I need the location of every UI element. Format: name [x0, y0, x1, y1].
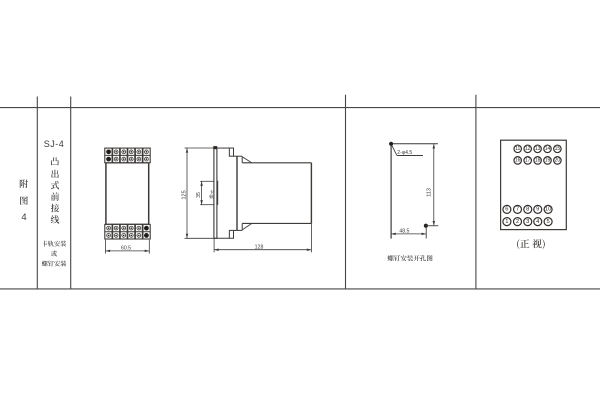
svg-text:113: 113: [426, 188, 432, 197]
svg-text:20: 20: [555, 158, 561, 164]
svg-text:12: 12: [525, 146, 531, 152]
svg-text:10: 10: [545, 207, 551, 213]
svg-text:5: 5: [546, 219, 549, 225]
svg-text:1: 1: [505, 219, 508, 225]
svg-text:14: 14: [545, 146, 551, 152]
svg-text:125: 125: [181, 190, 187, 199]
svg-text:13: 13: [535, 146, 541, 152]
svg-text:15: 15: [555, 146, 561, 152]
svg-text:2-φ4.5: 2-φ4.5: [397, 150, 412, 156]
svg-text:48.5: 48.5: [399, 229, 409, 235]
svg-text:18: 18: [535, 158, 541, 164]
svg-text:16: 16: [515, 158, 521, 164]
svg-text:60.5: 60.5: [121, 246, 131, 252]
svg-text:11: 11: [515, 146, 520, 152]
svg-text:128: 128: [255, 244, 264, 250]
svg-text:17: 17: [525, 158, 531, 164]
svg-text:3: 3: [526, 219, 529, 225]
svg-text:9: 9: [536, 207, 539, 213]
svg-text:4: 4: [21, 212, 26, 223]
svg-text:35: 35: [196, 192, 202, 198]
svg-text:6: 6: [505, 207, 508, 213]
svg-text:8: 8: [526, 207, 529, 213]
svg-text:SJ-4: SJ-4: [44, 139, 65, 149]
svg-text:7: 7: [516, 207, 519, 213]
svg-text:19: 19: [545, 158, 551, 164]
svg-text:2: 2: [516, 219, 519, 225]
